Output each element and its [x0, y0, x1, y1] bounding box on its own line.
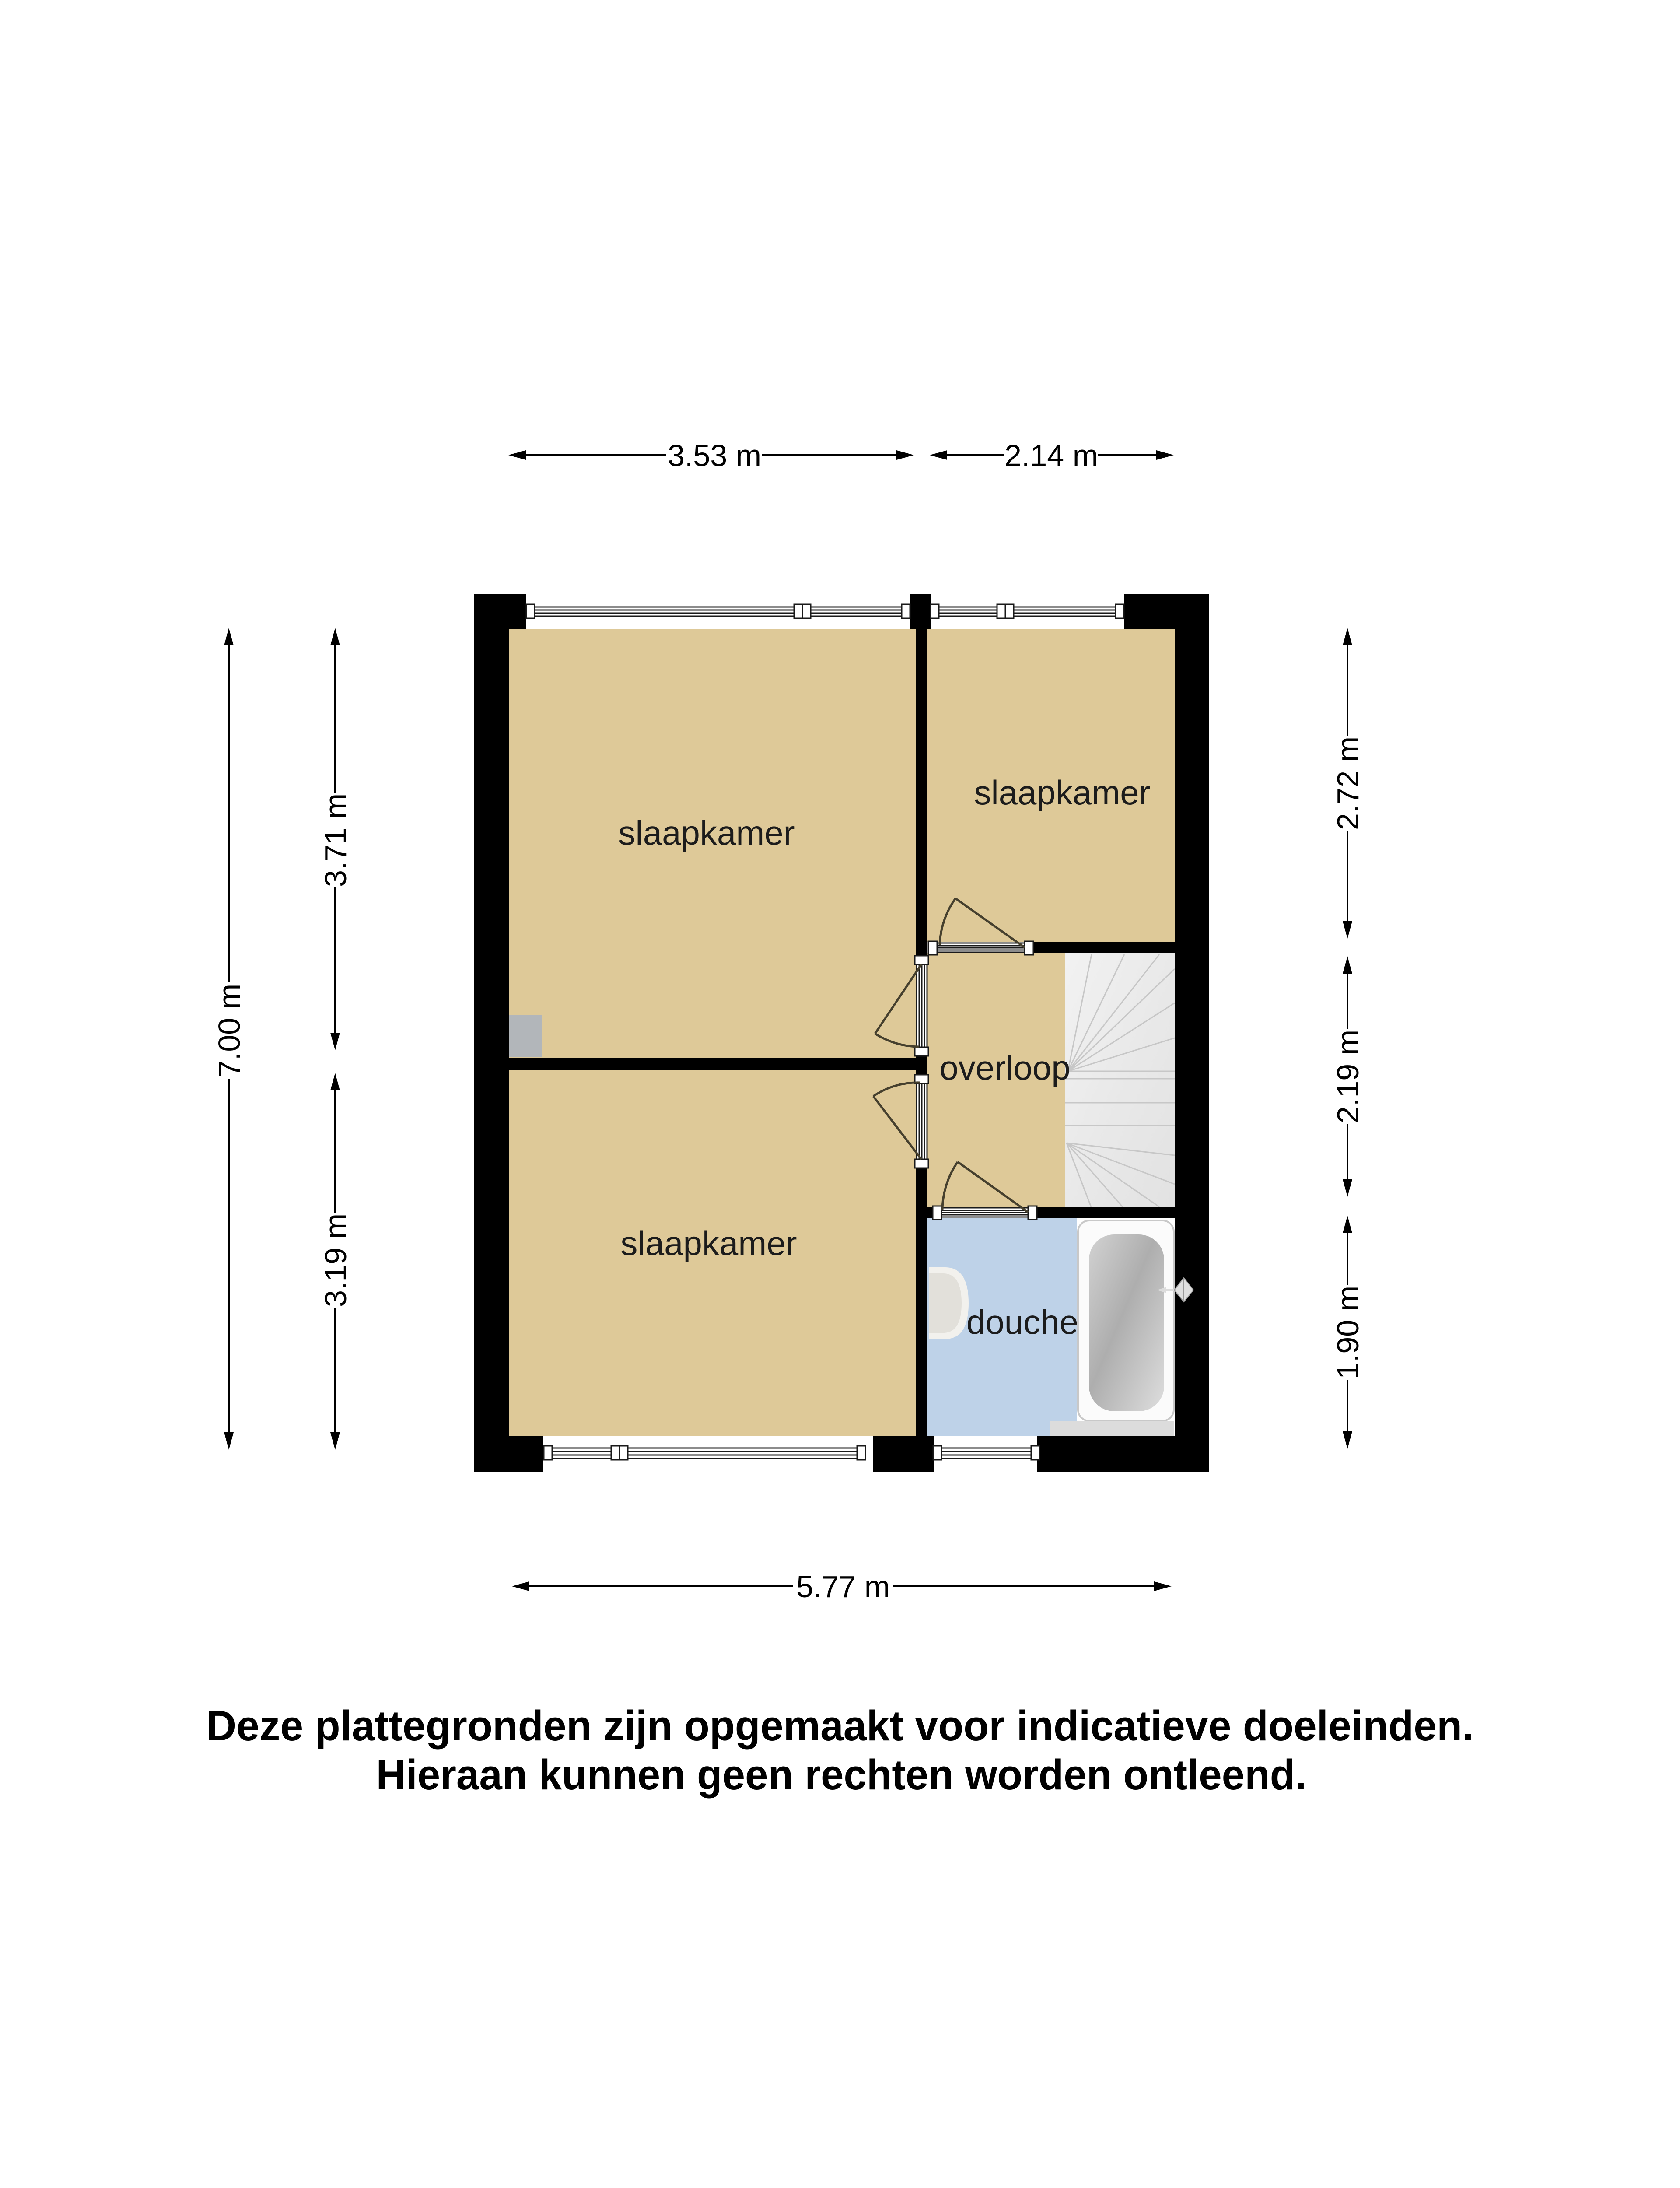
svg-text:3.53 m: 3.53 m [668, 438, 761, 473]
svg-text:2.19 m: 2.19 m [1331, 1030, 1365, 1123]
svg-text:slaapkamer: slaapkamer [620, 1224, 797, 1262]
svg-text:3.19 m: 3.19 m [318, 1213, 353, 1307]
svg-text:2.72 m: 2.72 m [1331, 736, 1365, 830]
svg-text:5.77 m: 5.77 m [796, 1570, 890, 1604]
svg-text:Hieraan kunnen geen rechten wo: Hieraan kunnen geen rechten worden ontle… [376, 1751, 1307, 1799]
svg-text:slaapkamer: slaapkamer [618, 813, 794, 852]
svg-text:slaapkamer: slaapkamer [974, 773, 1150, 812]
svg-text:1.90 m: 1.90 m [1331, 1286, 1365, 1379]
svg-text:7.00 m: 7.00 m [212, 984, 246, 1077]
svg-text:overloop: overloop [939, 1048, 1070, 1087]
svg-text:douche: douche [966, 1303, 1078, 1341]
svg-text:3.71 m: 3.71 m [318, 793, 353, 887]
svg-text:2.14 m: 2.14 m [1004, 438, 1098, 473]
svg-text:Deze plattegronden zijn opgema: Deze plattegronden zijn opgemaakt voor i… [206, 1702, 1474, 1750]
